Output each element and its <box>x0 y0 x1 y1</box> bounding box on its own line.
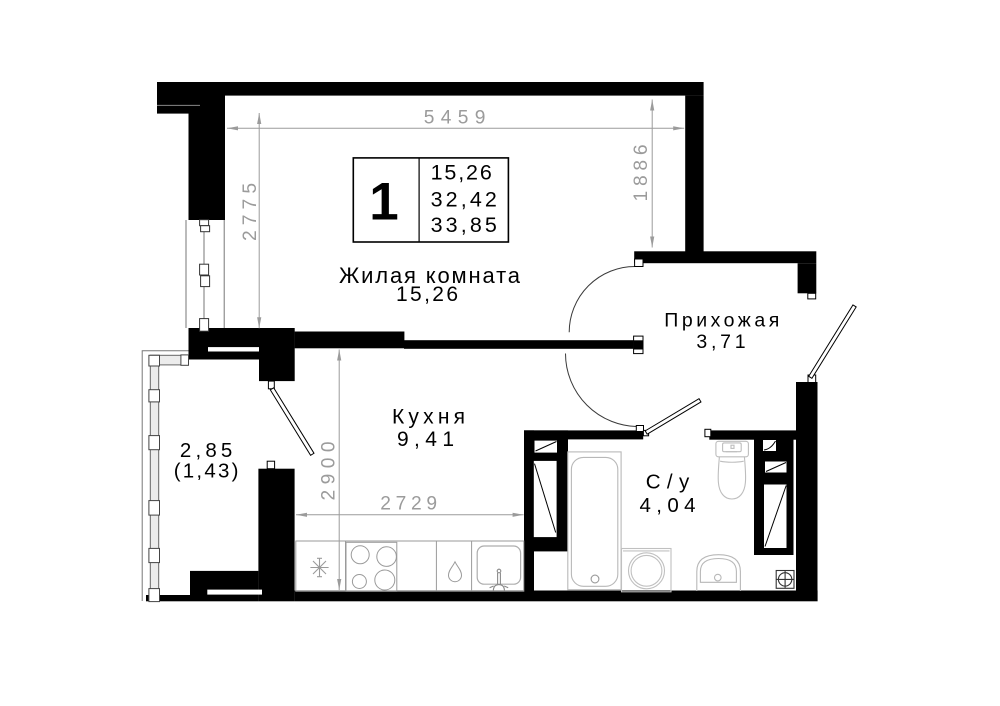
svg-text:Кухня: Кухня <box>392 406 465 429</box>
svg-text:С/у: С/у <box>646 471 690 494</box>
svg-text:1: 1 <box>369 173 398 232</box>
svg-text:32,42: 32,42 <box>431 187 497 211</box>
svg-text:(1,43): (1,43) <box>174 460 239 483</box>
svg-text:3,71: 3,71 <box>696 331 745 353</box>
svg-text:9,41: 9,41 <box>397 428 454 451</box>
svg-text:4,04: 4,04 <box>640 494 696 517</box>
svg-text:33,85: 33,85 <box>431 213 497 237</box>
svg-text:15,26: 15,26 <box>431 161 492 185</box>
svg-text:15,26: 15,26 <box>396 283 458 306</box>
